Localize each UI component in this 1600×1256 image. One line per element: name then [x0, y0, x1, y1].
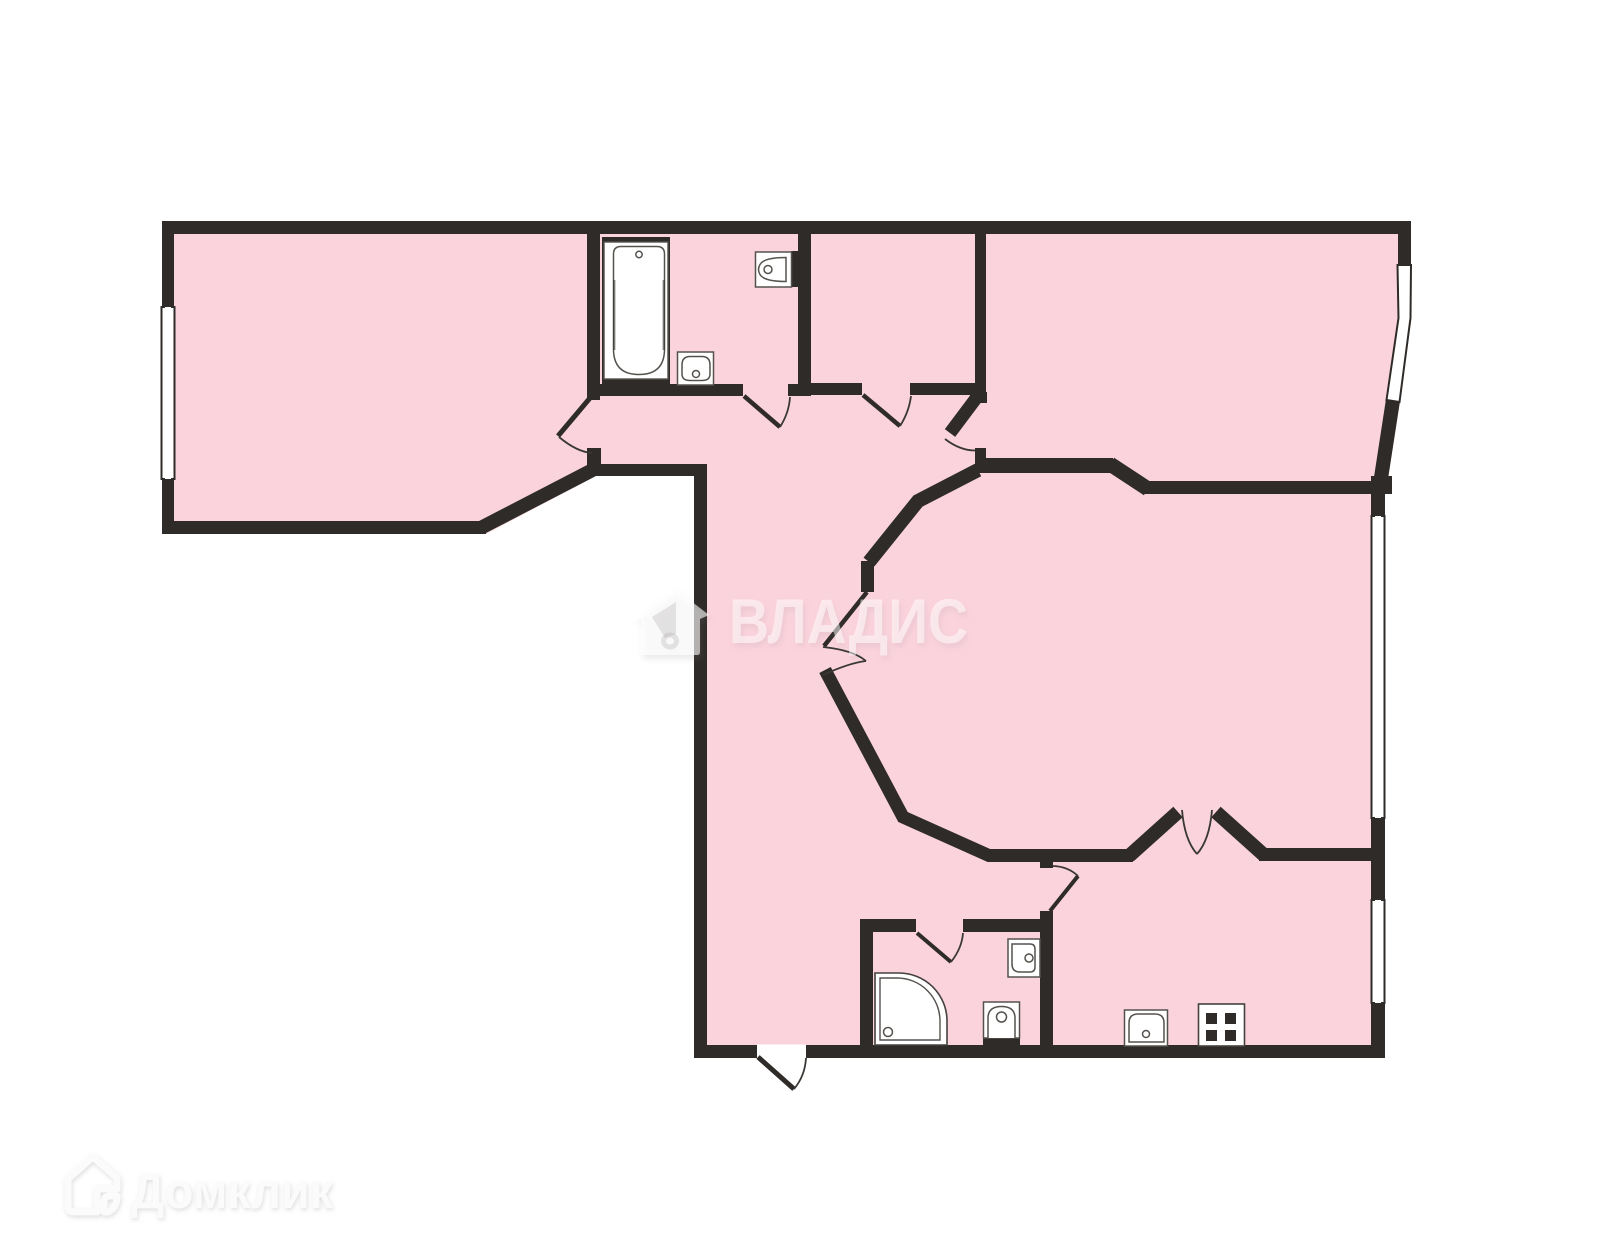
svg-text:Домклик: Домклик [131, 1165, 333, 1219]
svg-text:ВЛАДИС: ВЛАДИС [729, 587, 968, 657]
